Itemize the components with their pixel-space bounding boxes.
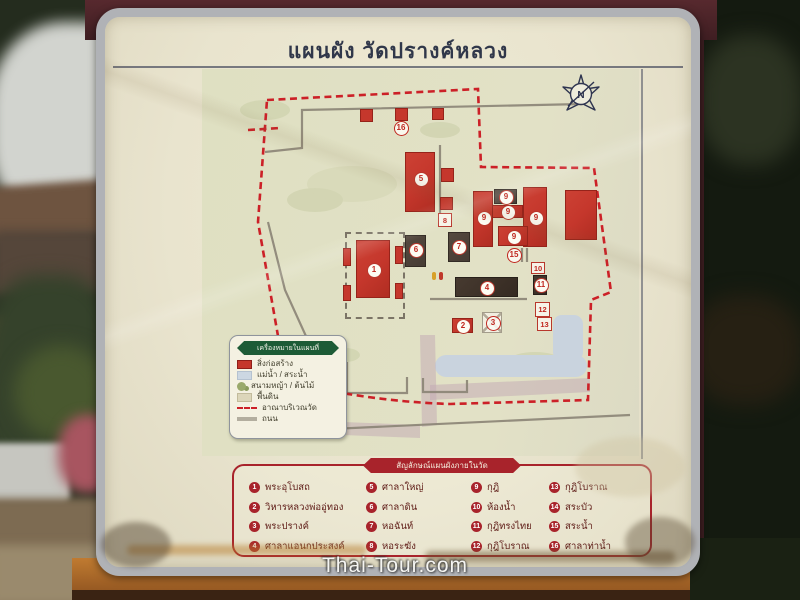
key-number-badge: 3 xyxy=(249,521,260,532)
wall-gate xyxy=(343,248,351,266)
key-item: 1พระอุโบสถ xyxy=(249,480,345,495)
legend-item: สิ่งก่อสร้าง xyxy=(237,360,342,369)
key-number-badge: 7 xyxy=(366,521,377,532)
boundary-dash-icon xyxy=(237,407,257,409)
map-number-badge: 11 xyxy=(534,278,549,293)
key-item: 14สระบัว xyxy=(549,500,611,515)
key-number-badge: 16 xyxy=(549,541,560,552)
sign-panel: แผนผัง วัดปรางค์หลวง xyxy=(105,17,691,567)
building-wing xyxy=(440,197,453,210)
map-number-badge: 9 xyxy=(529,211,544,226)
compass-rose-icon: N xyxy=(554,69,608,123)
map-legend: เครื่องหมายในแผนที่ สิ่งก่อสร้าง แม่น้ำ … xyxy=(229,335,347,439)
svg-text:N: N xyxy=(577,90,584,101)
fade-stain xyxy=(575,437,685,497)
marker-old-kuti-13: 13 xyxy=(537,317,552,331)
key-item: 3พระปรางค์ xyxy=(249,519,345,534)
key-item: 7หอฉันท์ xyxy=(366,519,424,534)
key-number-badge: 2 xyxy=(249,502,260,513)
key-number-badge: 13 xyxy=(549,482,560,493)
waterfront-pavilion xyxy=(432,108,444,120)
flag-marker xyxy=(432,272,436,280)
key-item: 5ศาลาใหญ่ xyxy=(366,480,424,495)
marker-bathroom: 10 xyxy=(531,262,545,274)
water-swatch-icon xyxy=(237,371,252,380)
map-number-badge: 1 xyxy=(367,263,382,278)
building-swatch-icon xyxy=(237,360,252,369)
photo-scene: แผนผัง วัดปรางค์หลวง xyxy=(0,0,800,600)
foliage-bottom-right xyxy=(690,538,800,600)
map-right-border-line xyxy=(641,69,643,459)
key-item-label: ศาลาดิน xyxy=(382,500,417,515)
waterfront-pavilion xyxy=(395,108,408,121)
key-item: 8หอระฆัง xyxy=(366,539,424,554)
key-item-label: พระอุโบสถ xyxy=(265,480,310,495)
map-number-badge: 7 xyxy=(452,240,467,255)
map-number-badge: 6 xyxy=(409,243,424,258)
key-item: 15สระน้ำ xyxy=(549,519,611,534)
key-header-ribbon: สัญลักษณ์แผนผังภายในวัด xyxy=(363,458,521,473)
key-number-badge: 12 xyxy=(471,541,482,552)
title-divider-line xyxy=(113,66,683,68)
sign-base-shadow xyxy=(72,590,720,600)
key-item-label: หอฉันท์ xyxy=(382,519,413,534)
rust-stain xyxy=(625,517,695,567)
key-item-label: กุฎิทรงไทย xyxy=(487,519,532,534)
key-item-label: ศาลาใหญ่ xyxy=(382,480,424,495)
map-number-badge: 3 xyxy=(486,316,501,331)
key-item-label: หอระฆัง xyxy=(382,539,416,554)
key-number-badge: 6 xyxy=(366,502,377,513)
key-item: 9กุฎิ xyxy=(471,480,532,495)
key-column-3: 9กุฎิ 10ห้องน้ำ 11กุฎิทรงไทย 12กุฎิโบราณ xyxy=(471,480,532,554)
legend-item: พื้นดิน xyxy=(237,393,342,402)
key-item: 11กุฎิทรงไทย xyxy=(471,519,532,534)
site-map: 8 10 12 13 1 5 6 7 9 9 9 9 9 4 11 2 3 15… xyxy=(202,69,639,456)
legend-header-ribbon: เครื่องหมายในแผนที่ xyxy=(237,341,339,355)
key-column-1: 1พระอุโบสถ 2วิหารหลวงพ่ออู่ทอง 3พระปรางค… xyxy=(249,480,345,554)
map-number-badge: 9 xyxy=(477,211,492,226)
map-number-badge: 9 xyxy=(499,190,514,205)
tree-swatch-icon xyxy=(237,382,246,391)
sign-title: แผนผัง วัดปรางค์หลวง xyxy=(105,35,691,68)
key-item-label: สระบัว xyxy=(565,500,592,515)
waterfront-pavilion xyxy=(360,109,373,122)
watermark-text: Thai-Tour.com xyxy=(290,554,500,578)
key-item-label: กุฎิ xyxy=(487,480,499,495)
flag-marker xyxy=(439,272,443,280)
key-item-label: พระปรางค์ xyxy=(265,519,309,534)
key-item-label: ห้องน้ำ xyxy=(487,500,515,515)
marker-bell-tower: 8 xyxy=(438,213,452,227)
key-number-badge: 15 xyxy=(549,521,560,532)
map-number-badge: 9 xyxy=(507,230,522,245)
map-number-badge: 16 xyxy=(394,121,409,136)
marker-old-kuti-12: 12 xyxy=(535,302,550,317)
wall-gate xyxy=(395,246,403,264)
key-number-badge: 5 xyxy=(366,482,377,493)
building-east xyxy=(565,190,597,240)
map-number-badge: 2 xyxy=(456,319,471,334)
key-item-label: วิหารหลวงพ่ออู่ทอง xyxy=(265,500,343,515)
wall-gate xyxy=(395,283,403,299)
key-number-badge: 1 xyxy=(249,482,260,493)
legend-item: ถนน xyxy=(237,415,342,424)
map-number-badge: 9 xyxy=(501,205,516,220)
rust-stain xyxy=(101,522,171,567)
key-number-badge: 11 xyxy=(471,521,482,532)
legend-item: อาณาบริเวณวัด xyxy=(237,404,342,413)
key-number-badge: 9 xyxy=(471,482,482,493)
legend-item: สนามหญ้า / ต้นไม้ xyxy=(237,382,342,391)
map-number-badge: 15 xyxy=(507,248,522,263)
key-column-2: 5ศาลาใหญ่ 6ศาลาดิน 7หอฉันท์ 8หอระฆัง xyxy=(366,480,424,554)
key-number-badge: 10 xyxy=(471,502,482,513)
ground-swatch-icon xyxy=(237,393,252,402)
key-number-badge: 14 xyxy=(549,502,560,513)
key-item-label: สระน้ำ xyxy=(565,519,593,534)
road-swatch-icon xyxy=(237,417,257,421)
key-item: 2วิหารหลวงพ่ออู่ทอง xyxy=(249,500,345,515)
map-number-badge: 5 xyxy=(414,172,429,187)
key-number-badge: 8 xyxy=(366,541,377,552)
key-item: 10ห้องน้ำ xyxy=(471,500,532,515)
legend-item: แม่น้ำ / สระน้ำ xyxy=(237,371,342,380)
trees-right-light xyxy=(698,35,800,165)
temple-map-signboard: แผนผัง วัดปรางค์หลวง xyxy=(96,8,700,576)
trees-right-brown xyxy=(688,295,800,405)
building-wing xyxy=(441,168,454,182)
key-item: 6ศาลาดิน xyxy=(366,500,424,515)
wall-gate xyxy=(343,285,351,301)
map-number-badge: 4 xyxy=(480,281,495,296)
